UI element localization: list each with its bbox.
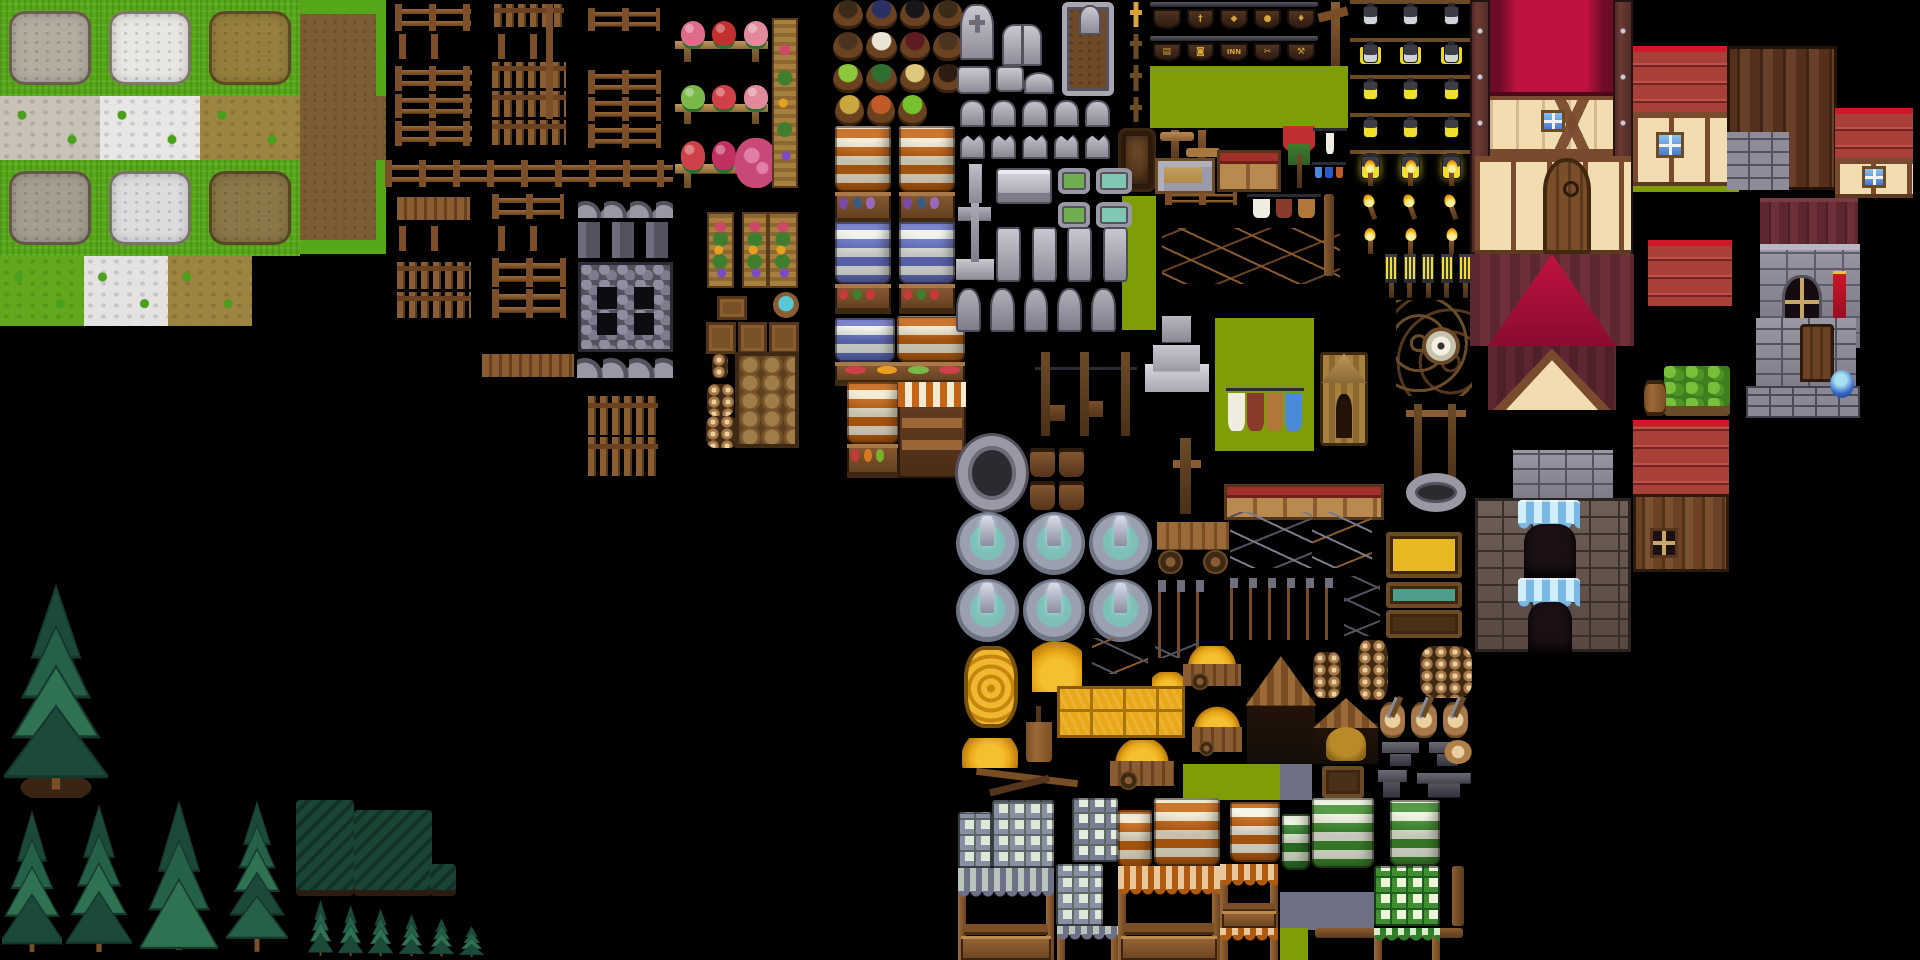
stall-frame-3 <box>1118 866 1220 960</box>
fence-posts-a <box>399 34 461 60</box>
pine-2 <box>66 800 132 958</box>
butter-churn <box>1026 706 1052 762</box>
stall-blue-2 <box>899 222 955 284</box>
branch-clock <box>1396 300 1472 396</box>
sign-strip-2: ▤◙INN✂⚒ <box>1150 36 1318 66</box>
produce-barrels <box>835 95 927 126</box>
log-pile-3 <box>1313 652 1341 698</box>
clothesline-mixed <box>1247 194 1321 224</box>
log-pile-5 <box>1420 646 1472 698</box>
flask-sign-icon: ♦ <box>1287 9 1315 29</box>
stall-frame-6 <box>1374 928 1440 960</box>
stall-counter-1 <box>835 192 891 224</box>
fence-rail-2row <box>492 258 566 320</box>
plaid-blue-d <box>1056 864 1103 926</box>
tileset-spritesheet: †◆●♦▤◙INN✂⚒ <box>0 0 1920 960</box>
clothesline-sheet <box>1313 128 1347 160</box>
trellis-a <box>707 212 734 288</box>
forest-block-2 <box>354 810 432 896</box>
plank-building <box>1727 46 1837 190</box>
log-pile-2 <box>706 416 738 448</box>
plaid-blue-c <box>1072 798 1118 862</box>
flower-table-2 <box>675 84 768 124</box>
pine-3 <box>140 796 218 956</box>
chop-blocks <box>1377 702 1471 738</box>
hay-cart-2 <box>1192 706 1242 752</box>
bench-trough <box>1322 766 1364 798</box>
stall-counter-3 <box>835 284 891 314</box>
fence-rail-a <box>395 4 471 32</box>
tombstone-row-broken <box>957 133 1113 159</box>
stall-frame-4 <box>1220 864 1278 928</box>
brown-door-s <box>1800 324 1834 382</box>
inn-sign: INN <box>1220 43 1248 61</box>
wood-crosses <box>1126 2 1146 124</box>
fence-posts-d <box>498 226 538 252</box>
roof-steep-red <box>1490 0 1613 96</box>
forest-block-1 <box>296 800 354 896</box>
stall-orange-1 <box>835 126 891 192</box>
tombstone-cross-tall <box>960 4 994 60</box>
trough-empty <box>1386 610 1462 638</box>
fork-row-2 <box>1230 578 1342 640</box>
gable-triangle-b <box>1488 346 1616 410</box>
roof-shingle-c <box>1633 46 1739 112</box>
fence-xrail <box>492 194 564 220</box>
hay-barrow <box>1110 740 1174 786</box>
grass-stone-row-top <box>0 0 300 96</box>
book-sign-icon: ▤ <box>1153 43 1181 61</box>
grave-plot <box>1062 2 1114 96</box>
dirt-grass-bot <box>300 160 386 254</box>
canopy-green-b <box>1312 798 1374 868</box>
shears-sign-icon: ✂ <box>1254 43 1282 61</box>
tombstone-double <box>1002 24 1042 66</box>
green-square-2 <box>1230 764 1280 800</box>
hay-bales <box>1057 686 1185 738</box>
tree-stump <box>1444 740 1472 764</box>
trough-water <box>1386 582 1462 608</box>
water-pump <box>1173 438 1201 514</box>
shed-window-cross <box>1650 528 1678 558</box>
half-barrel <box>1644 380 1666 416</box>
shed-roof <box>1633 420 1729 494</box>
basin-green-1 <box>1058 168 1090 194</box>
statue-row <box>956 288 1116 332</box>
well-round <box>958 436 1026 510</box>
grass-stone-row-2 <box>0 160 300 256</box>
bread-sign-icon: ● <box>1254 9 1282 29</box>
trellis-tall <box>772 18 798 188</box>
log-pile-4 <box>1358 640 1388 700</box>
canopy-green-chevron <box>1282 814 1310 870</box>
bucket-grid <box>1030 448 1084 510</box>
window-blue-e <box>1862 166 1886 188</box>
shop-doorway-1 <box>1524 524 1576 578</box>
barrel-grid <box>833 0 963 93</box>
signpost-double <box>1155 130 1217 158</box>
anvil-big <box>1416 770 1472 798</box>
beam-fence <box>1165 192 1237 206</box>
stone-wall-big <box>578 262 673 352</box>
fence-posts-c <box>399 226 461 252</box>
vase-sign-icon: ◆ <box>1220 9 1248 29</box>
log-small <box>712 354 728 378</box>
brick-band-c <box>1513 450 1613 498</box>
forest-block-3 <box>430 864 456 896</box>
awning-orange-small <box>897 316 965 362</box>
pole-right <box>1452 866 1464 926</box>
pedestal-row <box>996 224 1128 282</box>
post-buckets <box>1035 352 1137 436</box>
trellis-c <box>768 212 798 288</box>
fence-post-col <box>546 4 564 124</box>
tombstone-slab-2 <box>996 66 1024 92</box>
pine-4 <box>226 796 288 958</box>
fence-picket-2row <box>397 262 471 320</box>
sarcophagus <box>996 168 1052 204</box>
tombstone-row <box>957 100 1113 127</box>
dirt-mid <box>300 96 386 160</box>
window-blue-c <box>1656 132 1684 158</box>
wooden-cart <box>1157 514 1229 574</box>
stall-frame-1 <box>958 868 1054 960</box>
flower-table-1 <box>675 20 768 62</box>
basin-teal-1 <box>1096 168 1132 194</box>
lantern-grid <box>1350 0 1472 158</box>
canopy-orange-c <box>1230 802 1280 862</box>
roof-darkred-castle <box>1760 198 1858 244</box>
stall-frame-2 <box>1057 926 1119 960</box>
pine-big <box>4 578 108 798</box>
crate-single <box>717 296 747 320</box>
mug-sign-icon: ◙ <box>1187 43 1215 61</box>
grey-square-1 <box>1280 764 1312 800</box>
counter-shingle <box>1217 150 1281 192</box>
shop-awning-2 <box>1518 578 1580 602</box>
wood-shed-2 <box>1314 698 1378 764</box>
dirt-grass-top <box>300 0 386 96</box>
rubble-row-2 <box>577 352 673 378</box>
hay-mound <box>1032 642 1082 692</box>
canopy-orange-a <box>1118 810 1152 868</box>
sword-sign-icon: † <box>1187 9 1215 29</box>
roof-gable-b <box>1470 254 1634 346</box>
tool-hammers <box>1312 512 1372 568</box>
pink-bush <box>735 138 777 188</box>
wood-shed-1 <box>1247 656 1315 764</box>
roof-shingle-e <box>1835 108 1913 158</box>
stone-steps <box>1145 314 1209 392</box>
plaid-green-a <box>1374 866 1440 926</box>
log-pile-1 <box>707 384 734 416</box>
scarecrow <box>1283 126 1315 188</box>
notice-boards <box>1155 158 1215 194</box>
fountain-grid <box>956 512 1152 642</box>
green-main <box>1150 66 1348 128</box>
canopy-green-c <box>1390 800 1440 866</box>
trough-hay <box>1386 532 1462 578</box>
grey-slab-2 <box>1280 892 1374 930</box>
small-pine-row <box>308 898 484 958</box>
clothesline-yard <box>1226 388 1304 444</box>
tool-pincers <box>1344 576 1380 636</box>
stall-blue-1 <box>835 222 891 284</box>
standing-lanterns <box>1384 254 1472 298</box>
tombstone-round-1 <box>1024 72 1054 94</box>
plough <box>976 760 1082 798</box>
blank-sign-icon <box>1153 9 1181 29</box>
canopy-orange-b <box>1154 798 1220 866</box>
plaid-blue-b <box>992 800 1054 868</box>
wall-cream-c <box>1633 112 1739 186</box>
fence-rail-3row <box>395 66 472 150</box>
fence-posts-b <box>498 34 538 60</box>
hay-cart-1 <box>1183 646 1241 686</box>
water-barrel <box>773 292 799 318</box>
tombstone-slab-1 <box>957 66 991 94</box>
tools-sign-icon: ⚒ <box>1287 43 1315 61</box>
sign-strip-1: †◆●♦ <box>1150 2 1318 34</box>
rubble-row-1 <box>578 198 673 218</box>
trellis-b <box>742 212 768 288</box>
grass-line-c <box>1633 186 1739 192</box>
outhouse <box>1320 352 1368 446</box>
roof-shingle-mid <box>1648 240 1732 306</box>
torch-grid <box>1350 158 1472 254</box>
shed-wall <box>1633 494 1729 572</box>
well-winch <box>1406 404 1466 512</box>
stall-orange-3 <box>847 382 899 444</box>
stall-counter-2 <box>899 192 955 224</box>
stone-floor-row-2 <box>0 256 252 326</box>
door-barrel <box>1543 158 1591 254</box>
hay-roll <box>964 646 1018 728</box>
awning-blue-small <box>835 318 895 362</box>
anvil-small <box>1377 766 1407 798</box>
stall-frame-5 <box>1220 928 1278 960</box>
window-blue-a <box>1541 110 1565 132</box>
cross-monument <box>956 164 994 280</box>
tool-blades <box>1230 512 1312 568</box>
cobble-path <box>735 352 799 448</box>
crate-row <box>705 322 800 354</box>
green-square-3 <box>1280 928 1308 960</box>
stall-counter-4 <box>899 284 955 314</box>
signpost-tall <box>1318 2 1348 66</box>
fence-solid-a <box>397 197 470 221</box>
pole-tall <box>1324 194 1334 276</box>
stone-wall-pillars <box>578 222 673 258</box>
fence-gate-long <box>385 160 673 188</box>
fence-picket-small <box>588 396 658 480</box>
plaid-blue-a <box>958 812 992 868</box>
shop-doorway-2 <box>1528 602 1572 654</box>
pine-1 <box>2 806 62 958</box>
hedge-planter <box>1664 366 1730 416</box>
clothesline-socks <box>1312 162 1346 180</box>
frame-top <box>588 8 660 32</box>
shop-awning-1 <box>1518 500 1580 524</box>
stone-floor-row <box>0 96 300 160</box>
produce-stand <box>898 382 966 478</box>
fence-solid-gate <box>482 354 574 378</box>
stall-orange-2 <box>899 126 955 192</box>
frame-big <box>588 70 661 152</box>
blue-pot <box>1830 370 1854 398</box>
wood-planks-scatter <box>1162 228 1340 284</box>
tool-hooks-2 <box>1092 638 1148 674</box>
stall-counter-5 <box>847 444 899 478</box>
